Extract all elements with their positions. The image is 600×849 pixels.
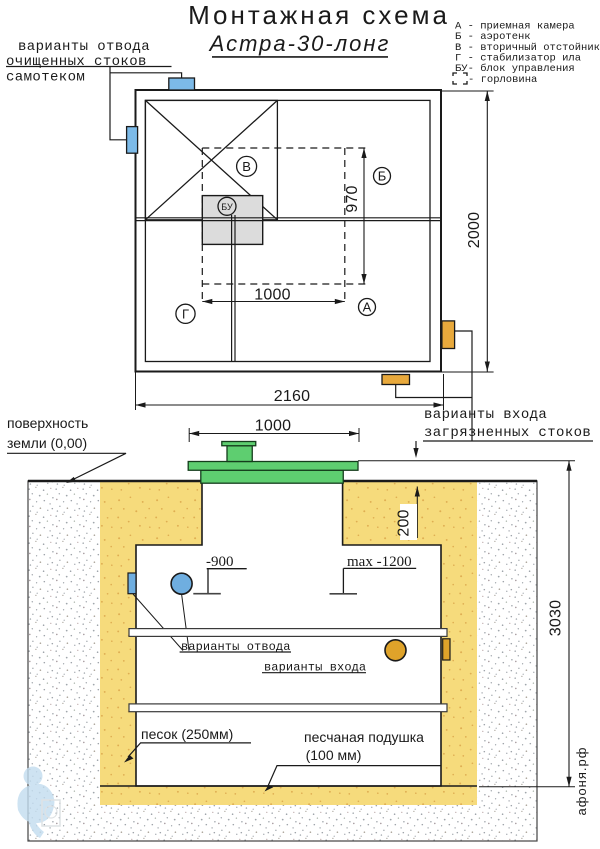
svg-text:варианты отвода: варианты отвода [18,39,150,55]
svg-text:А: А [363,300,372,315]
svg-text:самотеком: самотеком [6,70,85,86]
svg-text:2160: 2160 [274,388,310,405]
svg-text:- горловина: - горловина [468,74,537,86]
svg-text:песчаная подушка: песчаная подушка [304,729,424,745]
svg-text:афоня.рф: афоня.рф [574,747,589,816]
svg-text:земли (0,00): земли (0,00) [7,435,87,451]
svg-text:Г: Г [182,306,189,321]
svg-text:1000: 1000 [255,418,291,435]
svg-text:(100 мм): (100 мм) [306,747,362,763]
svg-text:песок (250мм): песок (250мм) [141,726,233,742]
svg-text:1000: 1000 [254,287,290,304]
svg-text:Монтажная схема: Монтажная схема [188,0,450,30]
svg-text:200: 200 [396,509,413,536]
svg-text:max -1200: max -1200 [347,554,412,570]
svg-text:очищенных стоков: очищенных стоков [6,54,147,70]
svg-text:-900: -900 [206,554,234,570]
svg-text:БУ: БУ [221,202,233,212]
svg-text:2000: 2000 [466,212,483,248]
svg-text:Б: Б [378,169,387,184]
svg-text:поверхность: поверхность [7,415,88,431]
svg-text:3030: 3030 [548,600,565,636]
svg-text:970: 970 [344,185,361,212]
svg-text:загрязненных стоков: загрязненных стоков [424,425,591,441]
svg-text:варианты входа: варианты входа [424,407,547,423]
svg-text:В: В [242,159,251,174]
svg-text:Астра-30-лонг: Астра-30-лонг [208,31,391,56]
